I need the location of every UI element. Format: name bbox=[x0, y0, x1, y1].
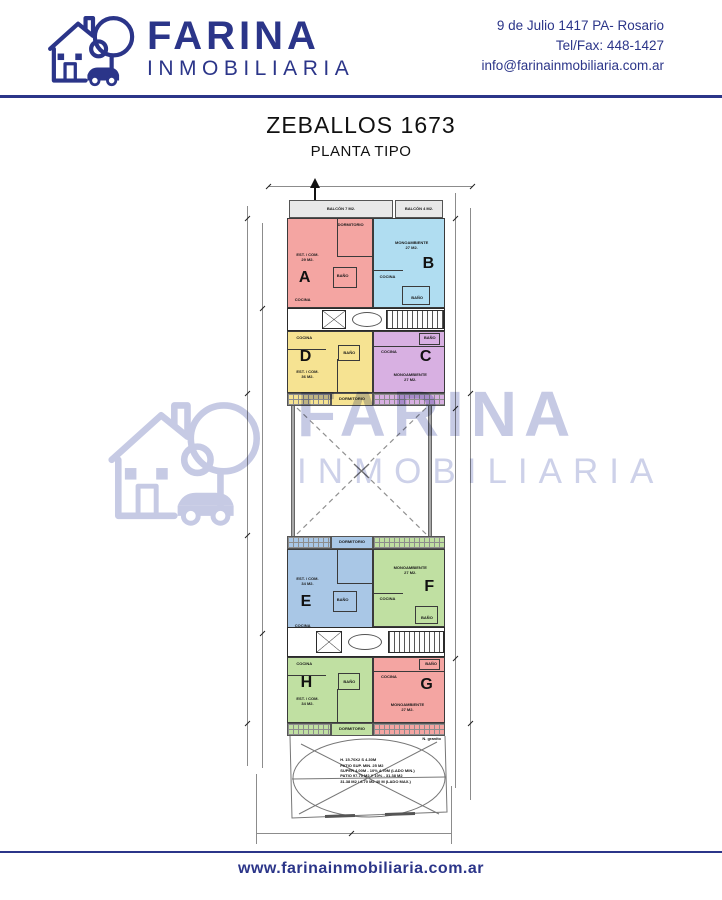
partition-wall bbox=[288, 675, 326, 676]
room-label: COCINA bbox=[381, 675, 397, 679]
brand-tagline: INMOBILIARIA bbox=[147, 57, 354, 80]
unit-B: MONOAMBIENTE27 M2. B COCINA BAÑO bbox=[373, 218, 445, 308]
room-label: DORMITORIO bbox=[339, 727, 365, 731]
room-label: COCINA bbox=[296, 336, 312, 340]
unit-use-label: EST. / COM.29 M2. bbox=[296, 252, 318, 262]
room-label: COCINA bbox=[295, 298, 311, 302]
terrace-strip bbox=[373, 723, 445, 736]
stair-landing bbox=[348, 634, 382, 650]
elevator bbox=[316, 631, 342, 653]
terrace-strip bbox=[287, 393, 331, 406]
dimension-tick bbox=[470, 184, 476, 190]
email-text: info@farinainmobiliaria.com.ar bbox=[481, 56, 664, 76]
circulation-core bbox=[287, 308, 445, 331]
floor-plan: BALCÓN 7 M2. BALCÓN 4 M2. DORMITORIO EST… bbox=[243, 178, 480, 846]
unit-use-label: MONOAMBIENTE27 M2. bbox=[395, 240, 428, 250]
unit-letter: C bbox=[420, 349, 432, 365]
bathroom-outline bbox=[419, 333, 440, 345]
terrace-strip bbox=[287, 723, 331, 736]
unit-E: EST. / COM.34 M2. E COCINA BAÑO bbox=[287, 549, 373, 633]
balcony-label: BALCÓN 7 M2. bbox=[327, 207, 355, 211]
house-tree-car-icon bbox=[45, 6, 141, 88]
courtyard-wall bbox=[428, 406, 432, 536]
terrace-strip: DORMITORIO bbox=[331, 723, 373, 736]
unit-A: DORMITORIO EST. / COM.29 M2. A COCINA BA… bbox=[287, 218, 373, 308]
unit-use-label: EST. / COM.34 M2. bbox=[296, 696, 318, 706]
unit-D: COCINA D EST. / COM.36 M2. BAÑO bbox=[287, 331, 373, 393]
staircase bbox=[386, 310, 444, 329]
dimension-line bbox=[262, 223, 263, 768]
unit-use-label: MONOAMBIENTE27 M2. bbox=[394, 565, 427, 575]
bathroom-outline bbox=[333, 267, 357, 288]
unit-C: BAÑO COCINA C MONOAMBIENTE27 M2. bbox=[373, 331, 445, 393]
dimension-line bbox=[470, 208, 471, 800]
partition-wall bbox=[374, 671, 444, 672]
unit-letter: F bbox=[424, 579, 434, 595]
unit-use-label: MONOAMBIENTE27 M2. bbox=[394, 372, 427, 382]
page-subtitle: PLANTA TIPO bbox=[0, 143, 722, 160]
patio-notes: H. 15.70X2 S 4.30M PATIO SUP. MIN. 25 M2… bbox=[340, 757, 414, 784]
dimension-line bbox=[455, 193, 456, 788]
terrace-strip bbox=[373, 393, 445, 406]
room-label: COCINA bbox=[380, 597, 396, 601]
title-block: ZEBALLOS 1673 PLANTA TIPO bbox=[0, 112, 722, 160]
contact-block: 9 de Julio 1417 PA- Rosario Tel/Fax: 448… bbox=[481, 16, 664, 76]
elevator bbox=[322, 310, 346, 329]
dimension-line bbox=[256, 833, 451, 834]
unit-F: MONOAMBIENTE27 M2. F COCINA BAÑO bbox=[373, 549, 445, 627]
patio-side-note: N. granito bbox=[422, 737, 441, 741]
bathroom-outline bbox=[338, 345, 360, 361]
footer-divider bbox=[0, 851, 722, 853]
bathroom-outline bbox=[338, 673, 360, 690]
dimension-line bbox=[256, 774, 257, 844]
room-label: COCINA bbox=[296, 662, 312, 666]
dimension-line bbox=[247, 206, 248, 766]
bathroom-outline bbox=[333, 591, 357, 612]
terrace-strip: DORMITORIO bbox=[331, 536, 373, 549]
partition-wall bbox=[337, 583, 372, 584]
terrace-strip bbox=[373, 536, 445, 549]
unit-letter: A bbox=[299, 270, 311, 286]
partition-wall bbox=[374, 270, 403, 271]
bathroom-outline bbox=[402, 286, 430, 305]
partition-wall bbox=[337, 550, 338, 583]
unit-letter: G bbox=[420, 677, 432, 693]
unit-letter: H bbox=[301, 675, 313, 691]
unit-use-label: EST. / COM.36 M2. bbox=[296, 369, 318, 379]
rear-patio: N. granito H. 15.70X2 S 4.30M PATIO SUP.… bbox=[289, 736, 449, 824]
unit-H: COCINA H EST. / COM.34 M2. BAÑO bbox=[287, 657, 373, 723]
phone-text: Tel/Fax: 448-1427 bbox=[481, 36, 664, 56]
partition-wall bbox=[288, 349, 326, 350]
balcony-label: BALCÓN 4 M2. bbox=[405, 207, 433, 211]
header-divider bbox=[0, 95, 722, 98]
dimension-line bbox=[268, 186, 473, 187]
partition-wall bbox=[337, 256, 372, 257]
unit-use-label: MONOAMBIENTE27 M2. bbox=[391, 702, 424, 712]
brand-logo: FARINA INMOBILIARIA bbox=[45, 6, 354, 88]
room-label: COCINA bbox=[381, 350, 397, 354]
dimension-line bbox=[451, 786, 452, 844]
circulation-core bbox=[287, 627, 445, 657]
unit-letter: E bbox=[301, 594, 312, 610]
unit-letter: D bbox=[300, 349, 312, 365]
partition-wall bbox=[374, 346, 444, 347]
partition-wall bbox=[337, 359, 338, 392]
balcony-strip: BALCÓN 7 M2. bbox=[289, 200, 393, 218]
balcony-strip: BALCÓN 4 M2. bbox=[395, 200, 443, 218]
website-text: www.farinainmobiliaria.com.ar bbox=[0, 860, 722, 878]
partition-wall bbox=[337, 219, 338, 256]
page-title: ZEBALLOS 1673 bbox=[0, 112, 722, 139]
room-label: COCINA bbox=[380, 275, 396, 279]
header: FARINA INMOBILIARIA 9 de Julio 1417 PA- … bbox=[0, 0, 722, 95]
courtyard-cross-lines bbox=[295, 406, 428, 536]
unit-use-label: EST. / COM.34 M2. bbox=[296, 576, 318, 586]
room-label: DORMITORIO bbox=[339, 397, 365, 401]
terrace-strip bbox=[287, 536, 331, 549]
address-text: 9 de Julio 1417 PA- Rosario bbox=[481, 16, 664, 36]
room-label: DORMITORIO bbox=[338, 223, 364, 227]
bathroom-outline bbox=[419, 659, 440, 671]
terrace-strip: DORMITORIO bbox=[331, 393, 373, 406]
north-arrow-head bbox=[310, 178, 320, 188]
unit-letter: B bbox=[423, 256, 435, 272]
room-label: DORMITORIO bbox=[339, 540, 365, 544]
brand-name: FARINA bbox=[147, 16, 354, 56]
partition-wall bbox=[374, 593, 403, 594]
unit-G: BAÑO COCINA G MONOAMBIENTE27 M2. bbox=[373, 657, 445, 723]
stair-landing bbox=[352, 312, 382, 327]
bathroom-outline bbox=[415, 606, 439, 624]
flyer-page: FARINA INMOBILIARIA 9 de Julio 1417 PA- … bbox=[0, 0, 722, 900]
partition-wall bbox=[337, 689, 338, 722]
staircase bbox=[388, 631, 444, 653]
